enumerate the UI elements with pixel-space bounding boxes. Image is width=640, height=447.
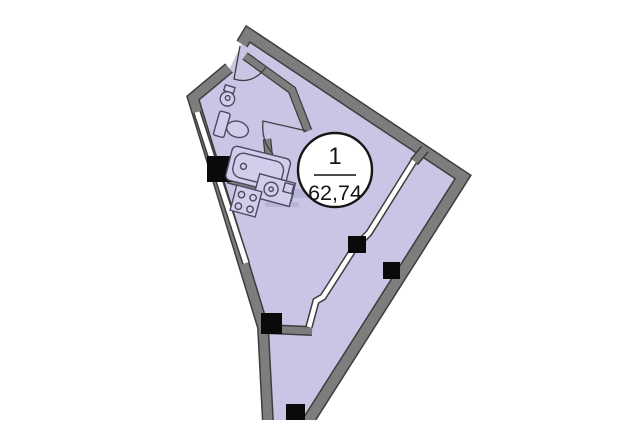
column-marker-glazing-mid [348, 236, 366, 253]
crop-mask [0, 420, 640, 447]
floor-plan-canvas: 1 62,74 [0, 0, 640, 447]
column-marker-bottom-tip [286, 404, 305, 421]
unit-area: 62,74 [308, 181, 362, 205]
stove-icon [230, 185, 262, 217]
column-marker-balcony [383, 262, 400, 279]
unit-number: 1 [328, 143, 341, 170]
unit-label-badge: 1 62,74 [298, 133, 372, 207]
floor-plan-svg: 1 62,74 [0, 0, 640, 447]
column-marker-lower-jog [261, 313, 282, 334]
